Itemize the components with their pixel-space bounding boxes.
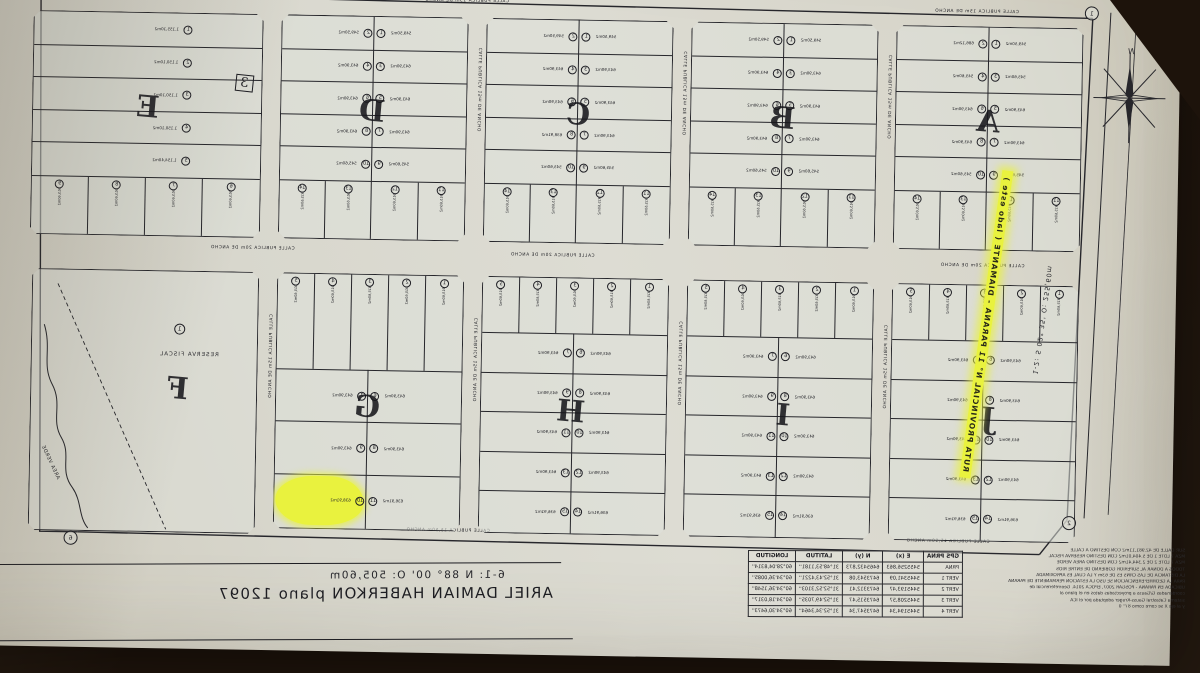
lot-number: 6 bbox=[576, 349, 585, 358]
south-boundary-measure: 6-1: N 88° 00' O: 505,60m bbox=[133, 569, 505, 582]
narrow-lot-strip: 11915,60m212915,60m213915,60m214915,60m2 bbox=[689, 186, 875, 247]
lot-number: 2 bbox=[364, 29, 373, 38]
gps-table-cell: PRNA bbox=[923, 562, 962, 573]
block-B: 57,5011915,60m212915,60m213915,60m214915… bbox=[688, 21, 879, 248]
lot-area: 636,91m2 bbox=[380, 499, 457, 504]
block-letter-D: D bbox=[358, 93, 387, 130]
gps-table-corner-header: GPS PRNA bbox=[923, 551, 962, 562]
lot-number: 1 bbox=[582, 32, 591, 41]
narrow-lot-area: 915,60m2 bbox=[597, 197, 601, 215]
narrow-lot-strip: 11915,60m212915,60m213915,60m214915,60m2 bbox=[484, 183, 670, 244]
notes-line: y al eje X se corre como 87° 0 bbox=[967, 604, 1185, 611]
creek-lines bbox=[29, 269, 259, 533]
lot-area: 643,90m2 bbox=[483, 469, 560, 474]
narrow-lot-area: 915,60m2 bbox=[505, 195, 509, 213]
lot-area: 643,90m2 bbox=[587, 392, 664, 397]
narrow-lot: 2915,60m2 bbox=[388, 275, 427, 371]
lot-number: 2 bbox=[979, 39, 988, 48]
narrow-lot-area: 915,60m2 bbox=[499, 288, 503, 306]
lot-area: 643,90m2 bbox=[689, 393, 766, 398]
gps-table-cell: 31°52'49,7035'' bbox=[795, 595, 842, 606]
narrow-lot: 12915,60m2 bbox=[371, 182, 418, 240]
lot-area: 643,90m2 bbox=[591, 133, 668, 138]
gps-table-row: VERT 35445208,576473515,4731°52'49,7035'… bbox=[748, 595, 962, 607]
lot-number: 5 bbox=[181, 156, 190, 165]
narrow-lot-area: 915,60m2 bbox=[368, 286, 372, 304]
narrow-lot-area: 915,60m2 bbox=[57, 187, 61, 205]
lot-number: 6 bbox=[986, 356, 995, 365]
gps-table-cell: 6473312,41 bbox=[842, 584, 882, 595]
lot-area: 643,90m2 bbox=[284, 95, 361, 100]
narrow-lot-strip: 1915,60m22915,60m23915,60m24915,60m25915… bbox=[687, 280, 873, 339]
block-letter-E: E bbox=[135, 89, 161, 126]
lot-number: 15 bbox=[970, 515, 979, 524]
narrow-lot-area: 915,60m2 bbox=[1020, 297, 1024, 315]
lot-area: 643,90m2 bbox=[791, 435, 868, 440]
lot-area: 643,90m2 bbox=[995, 478, 1072, 483]
block-rows: 643,90m267643,90m2643,90m289643,90m2643,… bbox=[479, 332, 667, 535]
lot-area: 545,60m2 bbox=[591, 166, 668, 171]
lot-area: 643,90m2 bbox=[387, 65, 464, 70]
lot-number: 6 bbox=[781, 352, 790, 361]
lot-number: 12 bbox=[779, 472, 788, 481]
lot-row: 643,90m289643,90m2 bbox=[275, 421, 461, 477]
narrow-lot-area: 915,60m2 bbox=[909, 295, 913, 313]
narrow-lot-area: 915,60m2 bbox=[573, 289, 577, 307]
lot-area: 643,90m2 bbox=[790, 474, 867, 479]
gps-table-cell: 31°52'43,4221'' bbox=[795, 573, 842, 584]
lot-row: 636,91m21415636,91m2 bbox=[479, 490, 665, 533]
narrow-lot-area: 915,60m2 bbox=[1057, 298, 1061, 316]
lot-area: 643,90m2 bbox=[483, 429, 560, 434]
gps-table-cell: VERT 3 bbox=[923, 595, 962, 606]
lot-number: 3 bbox=[581, 65, 590, 74]
lot-number: 12 bbox=[984, 475, 993, 484]
lot-number: 8 bbox=[370, 444, 379, 453]
narrow-lot-area: 915,60m2 bbox=[439, 194, 443, 212]
narrow-lot-area: 915,60m2 bbox=[704, 292, 708, 310]
gps-table-cell: 6465432,873 bbox=[843, 562, 883, 573]
lot-area: 636,91m2 bbox=[687, 512, 764, 517]
lot-number: 13 bbox=[971, 475, 980, 484]
narrow-lot-area: 915,60m2 bbox=[392, 193, 396, 211]
narrow-lot-area: 915,60m2 bbox=[961, 203, 965, 221]
narrow-lot: 5915,60m2 bbox=[277, 273, 316, 369]
lot-number: 10 bbox=[362, 159, 371, 168]
narrow-lot-strip: 1915,60m22915,60m23915,60m24915,60m25915… bbox=[277, 273, 464, 372]
narrow-lot: 4915,60m2 bbox=[519, 277, 557, 333]
lot-area: 643,90m2 bbox=[694, 102, 771, 107]
lot-number: 4 bbox=[182, 124, 191, 133]
lot-row: 643,90m21213643,90m2 bbox=[889, 458, 1075, 501]
lot-number: 10 bbox=[356, 496, 365, 505]
narrow-lot-area: 915,60m2 bbox=[778, 293, 782, 311]
narrow-lot: 6915,60m2 bbox=[202, 179, 260, 237]
block-letter-C: C bbox=[565, 97, 592, 134]
lot-area: 643,90m2 bbox=[899, 139, 976, 144]
lot-area: 643,90m2 bbox=[792, 395, 869, 400]
gps-table-cell: 31°48'53,1181'' bbox=[795, 562, 842, 573]
lot-row: 549,50m212686,12m2 bbox=[897, 26, 1083, 62]
lot-area: 643,90m2 bbox=[894, 397, 971, 402]
lot-area: 545,60m2 bbox=[693, 168, 770, 173]
parcel-f-letter: F bbox=[165, 371, 189, 408]
narrow-lot: 7915,60m2 bbox=[145, 178, 203, 236]
narrow-lot: 11915,60m2 bbox=[828, 190, 875, 248]
lot-area: 643,90m2 bbox=[381, 447, 458, 452]
gps-table-cell: 6473543,08 bbox=[842, 573, 882, 584]
narrow-lot: 13915,60m2 bbox=[530, 185, 577, 243]
lot-area: 1.150,10m2 bbox=[36, 124, 180, 131]
narrow-lot: 12915,60m2 bbox=[576, 185, 623, 243]
gps-table-cell: 60°34'36,0085'' bbox=[748, 573, 795, 584]
lot-row: 545,60m2910545,60m2 bbox=[895, 156, 1081, 192]
block-H: 57,501915,60m22915,60m23915,60m24915,60m… bbox=[478, 276, 669, 536]
narrow-lot: 14915,60m2 bbox=[894, 191, 941, 249]
lot-area: 643,90m2 bbox=[1001, 140, 1078, 145]
narrow-lot: 13915,60m2 bbox=[325, 181, 372, 239]
lot-area: 545,60m2 bbox=[796, 169, 873, 174]
lot-area: 545,60m2 bbox=[283, 161, 360, 166]
reserva-fiscal-label: RESERVA FISCAL bbox=[159, 351, 219, 358]
narrow-lot: 1915,60m2 bbox=[630, 279, 668, 335]
lot-area: 643,90m2 bbox=[278, 445, 355, 450]
lot-area: 636,91m2 bbox=[482, 509, 559, 514]
lot-number: 9 bbox=[784, 167, 793, 176]
title-block: 6-1: N 88° 00' O: 505,60m ARIEL DAMIAN H… bbox=[133, 569, 553, 603]
lot-area: 643,90m2 bbox=[997, 399, 1074, 404]
narrow-lot-area: 915,60m2 bbox=[710, 199, 714, 217]
lot-number: 9 bbox=[768, 392, 777, 401]
narrow-lot-area: 915,60m2 bbox=[756, 200, 760, 218]
narrow-lot: 3915,60m2 bbox=[556, 278, 594, 334]
narrow-lot: 2915,60m2 bbox=[593, 279, 631, 335]
lot-area: 686,12m2 bbox=[900, 40, 977, 45]
narrow-lot: 4915,60m2 bbox=[314, 274, 353, 370]
lot-area: 643,90m2 bbox=[796, 137, 873, 142]
lot-area: 643,90m2 bbox=[285, 63, 362, 68]
plan-content: N RUTA PROVINCIAL N° 11 PARANA - DIAMANT… bbox=[0, 0, 1199, 673]
lot-number: 13 bbox=[766, 471, 775, 480]
gps-table-row: VERT 15445341,096473543,0831°52'43,4221'… bbox=[748, 573, 962, 585]
gps-table-cell: 5445208,57 bbox=[883, 595, 923, 606]
lot-area: 643,90m2 bbox=[279, 392, 356, 397]
lot-area: 545,60m2 bbox=[898, 171, 975, 176]
narrow-lot-area: 915,60m2 bbox=[294, 285, 298, 303]
gps-table-cell: 60°34'18,0317'' bbox=[748, 595, 795, 606]
lot-number: 9 bbox=[375, 160, 384, 169]
gps-table-cell: 6473547,34 bbox=[842, 606, 882, 617]
parcel-f: 1 RESERVA FISCAL F AREA VERDE bbox=[28, 268, 260, 534]
narrow-lot-area: 915,60m2 bbox=[644, 198, 648, 216]
lot-area: 549,50m2 bbox=[1003, 42, 1080, 47]
lot-number: 15 bbox=[765, 511, 774, 520]
lot-area: 643,90m2 bbox=[586, 431, 663, 436]
narrow-lot-area: 915,60m2 bbox=[741, 292, 745, 310]
narrow-lot-area: 915,60m2 bbox=[442, 287, 446, 305]
narrow-lot-area: 915,60m2 bbox=[815, 294, 819, 312]
lot-area: 636,91m2 bbox=[892, 516, 969, 521]
block-I: 57,501915,60m22915,60m23915,60m24915,60m… bbox=[683, 279, 874, 539]
gps-table-cell: 60°34'36,1548'' bbox=[748, 584, 795, 595]
narrow-lot: 14915,60m2 bbox=[689, 187, 736, 245]
lot-area: 636,91m2 bbox=[994, 517, 1071, 522]
gps-table-cell: 5445193,47 bbox=[883, 584, 923, 595]
block-letter-A: A bbox=[976, 104, 1002, 141]
plan-title: ARIEL DAMIAN HABERKON plano 12097 bbox=[133, 584, 553, 603]
narrow-lot: 12915,60m2 bbox=[781, 189, 828, 247]
lot-number: 10 bbox=[567, 163, 576, 172]
lot-number: 9 bbox=[989, 170, 998, 179]
gps-table-cell: 5445341,09 bbox=[883, 573, 923, 584]
narrow-lot-area: 915,60m2 bbox=[849, 201, 853, 219]
lot-area: 545,60m2 bbox=[900, 73, 977, 78]
narrow-lot: 1915,60m2 bbox=[835, 283, 873, 339]
gps-table-cell: 31°52'34,3464'' bbox=[795, 606, 842, 617]
gps-table-cell: VERT 2 bbox=[923, 584, 962, 595]
block-G: 57,501915,60m22915,60m23915,60m24915,60m… bbox=[273, 272, 464, 531]
lot-number: 12 bbox=[574, 468, 583, 477]
lot-row: 545,60m2910545,60m2 bbox=[690, 153, 876, 189]
narrow-lot: 14915,60m2 bbox=[484, 184, 531, 242]
block-rows: 643,90m267643,90m2643,90m289643,90m2643,… bbox=[684, 335, 872, 538]
lot-area: 643,90m2 bbox=[694, 135, 771, 140]
lot-row: 545,60m2910545,60m2 bbox=[280, 146, 466, 182]
lot-number: 1 bbox=[787, 36, 796, 45]
lot-area: 643,90m2 bbox=[284, 128, 361, 133]
narrow-lot: 11915,60m2 bbox=[623, 186, 670, 244]
lot-area: 638,91m2 bbox=[489, 132, 566, 137]
lot-number: 11 bbox=[369, 497, 378, 506]
gps-table-cell: 5455256,863 bbox=[883, 562, 923, 573]
lot-number: 15 bbox=[561, 507, 570, 516]
lot-area: 643,90m2 bbox=[895, 357, 972, 362]
lot-number: 1 bbox=[992, 39, 1001, 48]
lot-number: 9 bbox=[580, 163, 589, 172]
lot-area: 1.150,10m2 bbox=[37, 58, 181, 65]
narrow-lot-area: 915,60m2 bbox=[300, 192, 304, 210]
lot-area: 636,91m2 bbox=[790, 514, 867, 519]
lot-row: 549,50m212549,50m2 bbox=[692, 22, 878, 58]
narrow-lot: 3915,60m2 bbox=[761, 282, 799, 338]
lot-row: 636,91m21110638,91m2 bbox=[274, 473, 460, 529]
compass-rose: N bbox=[1089, 50, 1171, 146]
narrow-lot-strip: 11915,60m212915,60m213915,60m214915,60m2 bbox=[279, 179, 465, 240]
lot-area: 643,90m2 bbox=[893, 437, 970, 442]
lot-number: 3 bbox=[376, 62, 385, 71]
narrow-lot-area: 915,60m2 bbox=[331, 285, 335, 303]
lot-row: 643,90m234643,90m2 bbox=[692, 55, 878, 91]
lot-area: 636,91m2 bbox=[585, 510, 662, 515]
gps-table-header: E (x) bbox=[883, 551, 923, 562]
narrow-lot-area: 915,60m2 bbox=[610, 290, 614, 308]
gps-table-header: LONGITUD bbox=[748, 551, 795, 562]
gps-table-row: VERT 45445194,346473547,3431°52'34,3464'… bbox=[748, 606, 962, 618]
block-letter-H: H bbox=[556, 393, 587, 430]
lot-number: 7 bbox=[768, 352, 777, 361]
lot-row: 545,60m2910545,60m2 bbox=[485, 149, 671, 185]
lot-area: 643,90m2 bbox=[688, 433, 765, 438]
photo-scene: N RUTA PROVINCIAL N° 11 PARANA - DIAMANT… bbox=[0, 0, 1200, 673]
gps-table-header: N (y) bbox=[843, 551, 883, 562]
lot-number: 9 bbox=[357, 444, 366, 453]
compass-star-icon bbox=[1089, 50, 1171, 146]
lot-row: 643,90m267643,90m2 bbox=[482, 332, 668, 375]
narrow-lot-strip: 11915,60m212915,60m213915,60m214915,60m2 bbox=[894, 190, 1080, 251]
gps-table-cell: 60°34'30,6473'' bbox=[748, 606, 795, 617]
narrow-lot-area: 915,60m2 bbox=[551, 196, 555, 214]
lot-area: 643,90m2 bbox=[996, 438, 1073, 443]
gps-coordinates-table: GPS PRNAE (x)N (y)LATITUDLONGITUDPRNA545… bbox=[748, 550, 963, 618]
lot-area: 643,90m2 bbox=[893, 476, 970, 481]
lot-number: 4 bbox=[978, 72, 987, 81]
lot-area: 643,90m2 bbox=[485, 350, 562, 355]
lot-number: 14 bbox=[778, 511, 787, 520]
gps-table-cell: 31°52'52,3103'' bbox=[795, 584, 842, 595]
narrow-lot-area: 915,60m2 bbox=[852, 294, 856, 312]
lot-area: 643,90m2 bbox=[899, 106, 976, 111]
lot-row: 643,90m234643,90m2 bbox=[487, 51, 673, 87]
lot-area: 643,90m2 bbox=[490, 66, 567, 71]
lot-number: 7 bbox=[563, 349, 572, 358]
narrow-lot: 5915,60m2 bbox=[482, 277, 520, 333]
narrow-lot: 4915,60m2 bbox=[929, 285, 967, 341]
lot-row: 643,90m21213643,90m2 bbox=[479, 451, 665, 494]
narrow-lot: 11915,60m2 bbox=[418, 183, 465, 241]
lot-number: 11 bbox=[562, 428, 571, 437]
lot-number: 11 bbox=[767, 432, 776, 441]
lot-number: 4 bbox=[363, 62, 372, 71]
lot-number: 3 bbox=[183, 91, 192, 100]
lot-area: 549,50m2 bbox=[695, 37, 772, 42]
lot-area: 643,90m2 bbox=[690, 353, 767, 358]
lot-area: 549,50m2 bbox=[388, 31, 465, 36]
lot-number: 3 bbox=[786, 69, 795, 78]
lot-area: 643,90m2 bbox=[585, 471, 662, 476]
lot-area: 643,90m2 bbox=[695, 70, 772, 75]
lot-row: 549,50m212549,50m2 bbox=[487, 19, 673, 55]
narrow-lot-area: 915,60m2 bbox=[647, 291, 651, 309]
narrow-lot: 8915,60m2 bbox=[88, 177, 146, 235]
lot-area: 643,90m2 bbox=[387, 97, 464, 102]
narrow-lot-area: 915,60m2 bbox=[346, 193, 350, 211]
lot-number: 4 bbox=[773, 69, 782, 78]
lot-row: 11.155,10m2 bbox=[34, 11, 263, 48]
gps-table-header: LATITUD bbox=[796, 551, 843, 562]
lot-area: 643,90m2 bbox=[484, 390, 561, 395]
lot-number: 2 bbox=[183, 58, 192, 67]
block-D: 57,5011915,60m212915,60m213915,60m214915… bbox=[278, 14, 469, 241]
narrow-lot-area: 915,60m2 bbox=[171, 189, 175, 207]
narrow-lot: 3915,60m2 bbox=[351, 275, 390, 371]
lot-number: 14 bbox=[983, 515, 992, 524]
lot-area: 643,90m2 bbox=[489, 99, 566, 104]
narrow-lot: 11915,60m2 bbox=[1032, 193, 1079, 251]
lot-row: 545,60m234545,60m2 bbox=[896, 59, 1082, 95]
lot-area: 643,90m2 bbox=[792, 355, 869, 360]
lot-number: 4 bbox=[568, 65, 577, 74]
lot-row: 643,90m267643,90m2 bbox=[687, 335, 873, 378]
handwritten-annotation: 3 bbox=[234, 74, 254, 93]
lot-row: 636,91m21415636,91m2 bbox=[889, 497, 1075, 540]
block-C: 57,5011915,60m212915,60m213915,60m214915… bbox=[483, 18, 674, 245]
lot-area: 643,90m2 bbox=[797, 72, 874, 77]
narrow-lot-area: 915,60m2 bbox=[229, 190, 233, 208]
lot-number: 1 bbox=[377, 29, 386, 38]
lot-area: 549,50m2 bbox=[490, 33, 567, 38]
lot-row: 51.154,40m2 bbox=[32, 141, 261, 178]
lot-area: 1.155,10m2 bbox=[37, 25, 181, 32]
narrow-lot-area: 915,60m2 bbox=[802, 200, 806, 218]
lot-row: 643,90m21213643,90m2 bbox=[684, 454, 870, 497]
lot-area: 549,50m2 bbox=[593, 35, 670, 40]
lot-area: 643,90m2 bbox=[592, 101, 669, 106]
narrow-lot: 9915,60m2 bbox=[31, 176, 89, 234]
narrow-lot-strip: 6915,60m27915,60m28915,60m29915,60m2 bbox=[31, 175, 260, 237]
narrow-lot-area: 915,60m2 bbox=[946, 296, 950, 314]
lot-row: 549,50m212549,50m2 bbox=[282, 15, 468, 51]
lot-number: 10 bbox=[976, 170, 985, 179]
lot-number: 13 bbox=[561, 468, 570, 477]
lot-area: 643,90m2 bbox=[1002, 108, 1079, 113]
narrow-lot: 13915,60m2 bbox=[940, 192, 987, 250]
lot-number: 2 bbox=[569, 32, 578, 41]
lot-area: 545,60m2 bbox=[386, 162, 463, 167]
narrow-lot: 2915,60m2 bbox=[798, 282, 836, 338]
narrow-lot-area: 915,60m2 bbox=[405, 287, 409, 305]
narrow-lot-area: 915,60m2 bbox=[114, 188, 118, 206]
lot-area: 643,90m2 bbox=[592, 68, 669, 73]
gps-table-row: PRNA5455256,8636465432,87331°48'53,1181'… bbox=[748, 562, 962, 574]
paper-sheet: N RUTA PROVINCIAL N° 11 PARANA - DIAMANT… bbox=[0, 0, 1182, 666]
block-E: 57,506915,60m27915,60m28915,60m29915,60m… bbox=[30, 10, 264, 238]
lot-area: 643,90m2 bbox=[382, 394, 459, 399]
lot-area: 549,50m2 bbox=[285, 30, 362, 35]
gps-table-cell: 60°28'04,8314'' bbox=[748, 562, 795, 573]
gps-table-cell: VERT 4 bbox=[923, 606, 962, 617]
gps-table-cell: VERT 1 bbox=[923, 573, 962, 584]
block-A: 57,5011915,60m212915,60m213915,60m214915… bbox=[893, 25, 1084, 252]
block-letter-G: G bbox=[353, 389, 382, 426]
notes-paragraph: SUP. CALLE DE 42.981,11m2 CON DESTINO A … bbox=[967, 548, 1185, 611]
lot-area: 643,90m2 bbox=[688, 473, 765, 478]
lot-area: 545,60m2 bbox=[488, 164, 565, 169]
narrow-lot-strip: 1915,60m22915,60m23915,60m24915,60m25915… bbox=[482, 277, 668, 336]
narrow-lot: 14915,60m2 bbox=[279, 180, 326, 238]
lot-row: 636,91m21415636,91m2 bbox=[684, 494, 870, 537]
narrow-lot: 4915,60m2 bbox=[724, 281, 762, 337]
lot-area: 549,50m2 bbox=[798, 39, 875, 44]
gps-table-cell: 6473515,47 bbox=[842, 595, 882, 606]
lot-area: 545,60m2 bbox=[1002, 75, 1079, 80]
narrow-lot: 13915,60m2 bbox=[735, 188, 782, 246]
lot-number: 10 bbox=[772, 167, 781, 176]
narrow-lot-area: 915,60m2 bbox=[1054, 205, 1058, 223]
narrow-lot-area: 915,60m2 bbox=[915, 202, 919, 220]
lot-row: 643,90m234643,90m2 bbox=[282, 48, 468, 84]
gps-table-row: VERT 25445193,476473312,4131°52'52,3103'… bbox=[748, 584, 962, 596]
lot-area: 643,90m2 bbox=[587, 351, 664, 356]
gps-table-cell: 5445194,34 bbox=[883, 606, 923, 617]
compass-north-label: N bbox=[1128, 47, 1134, 56]
lot-area: 643,90m2 bbox=[797, 104, 874, 109]
lot-area: 1.154,40m2 bbox=[35, 156, 179, 163]
block-letter-B: B bbox=[769, 100, 797, 137]
mirrored-photo: N RUTA PROVINCIAL N° 11 PARANA - DIAMANT… bbox=[0, 0, 1200, 673]
lot-area: 643,90m2 bbox=[386, 130, 463, 135]
narrow-lot: 1915,60m2 bbox=[425, 276, 464, 372]
narrow-lot: 5915,60m2 bbox=[892, 284, 930, 340]
